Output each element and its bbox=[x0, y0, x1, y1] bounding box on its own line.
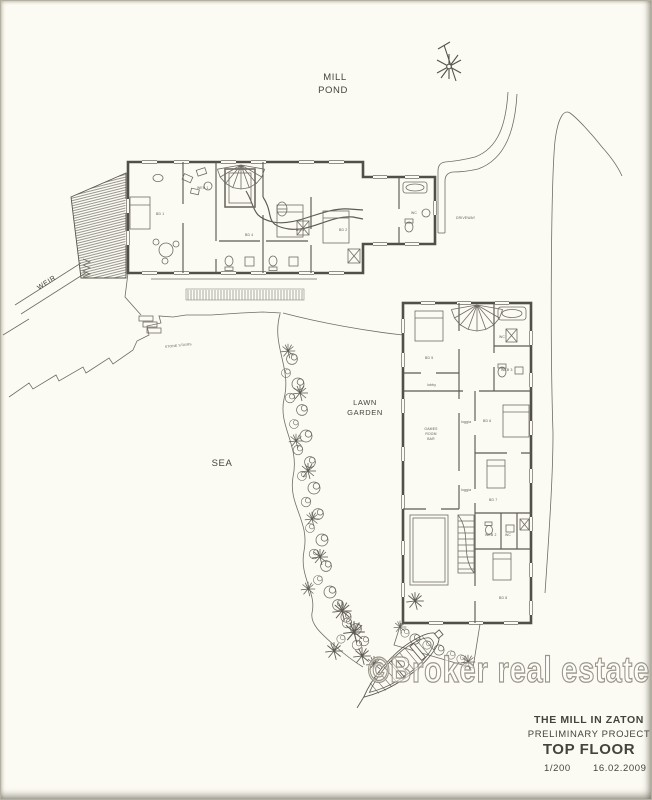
mill-pond-line1: MILL bbox=[323, 72, 347, 83]
room-label: BD 1 bbox=[156, 212, 164, 216]
drawing-scale: 1/200 bbox=[544, 763, 571, 774]
top-building-plan: BD 1 WEB 1 BD 4 BD 3 BD 2 WC bbox=[127, 161, 437, 275]
stone-stairs: STONE STAIRS bbox=[139, 316, 192, 349]
lawn-garden-label: LAWN GARDEN bbox=[347, 398, 383, 417]
north-arrow-icon bbox=[437, 42, 461, 81]
terrace-wall bbox=[125, 273, 317, 315]
weir: WEIR bbox=[3, 263, 87, 335]
room-label: BD 2 bbox=[339, 228, 347, 232]
room-label: BD 3 bbox=[296, 228, 304, 232]
title-block: THE MILL IN ZATON PRELIMINARY PROJECT TO… bbox=[528, 714, 650, 774]
interior-walls bbox=[183, 162, 399, 273]
stream-line bbox=[545, 112, 622, 593]
room-label: WC bbox=[505, 533, 511, 537]
room-label: BD 5 bbox=[425, 356, 433, 360]
interior-walls bbox=[403, 303, 531, 623]
room-label: lobby bbox=[427, 383, 436, 387]
sheet-title: TOP FLOOR bbox=[543, 741, 635, 758]
weir-hatch-roof bbox=[71, 173, 126, 278]
winder-stair bbox=[458, 515, 474, 573]
furniture-top-building bbox=[130, 168, 430, 271]
site-plan-drawing: MILL POND DRIVEWAY WEIR bbox=[1, 1, 652, 800]
shoreline-left bbox=[9, 312, 281, 397]
weir-label: WEIR bbox=[36, 275, 57, 292]
project-title: THE MILL IN ZATON bbox=[534, 714, 644, 726]
room-label: BAR bbox=[427, 437, 435, 441]
room-label: loggia bbox=[461, 420, 471, 424]
palm-trees bbox=[281, 344, 382, 672]
room-label: WEB 3 bbox=[501, 368, 513, 372]
room-label: BD 4 bbox=[245, 233, 253, 237]
lawn-label-line1: LAWN bbox=[353, 398, 377, 407]
room-label: loggia bbox=[461, 488, 471, 492]
sea-label: SEA bbox=[212, 458, 233, 469]
right-building-plan: BD 5 WC WEB 3 lobby GAMES ROOM BAR loggi… bbox=[402, 302, 533, 625]
room-label: BD 6 bbox=[483, 419, 491, 423]
room-label: GAMES bbox=[424, 427, 438, 431]
room-label: BD 7 bbox=[489, 498, 497, 502]
project-phase: PRELIMINARY PROJECT bbox=[528, 729, 650, 740]
room-label: BD 8 bbox=[499, 596, 507, 600]
scanned-plan-page: MILL POND DRIVEWAY WEIR bbox=[0, 0, 652, 800]
room-label: WEB 2 bbox=[485, 533, 497, 537]
stone-stairs-label: STONE STAIRS bbox=[165, 342, 193, 349]
mill-pond-line2: POND bbox=[318, 85, 348, 96]
access-road bbox=[438, 92, 517, 233]
pool bbox=[410, 515, 448, 585]
room-label: WC bbox=[499, 335, 505, 339]
lawn-boundary bbox=[283, 313, 403, 335]
lawn-label-line2: GARDEN bbox=[347, 408, 383, 417]
room-label: ROOM bbox=[425, 432, 436, 436]
room-label: WEB 1 bbox=[197, 186, 209, 190]
mill-pond-label: MILL POND bbox=[318, 72, 348, 96]
drawing-date: 16.02.2009 bbox=[593, 763, 647, 774]
room-label: WC bbox=[411, 211, 417, 215]
watermark-text: ©Broker real estate bbox=[368, 649, 650, 690]
driveway-label: DRIVEWAY bbox=[456, 216, 476, 220]
